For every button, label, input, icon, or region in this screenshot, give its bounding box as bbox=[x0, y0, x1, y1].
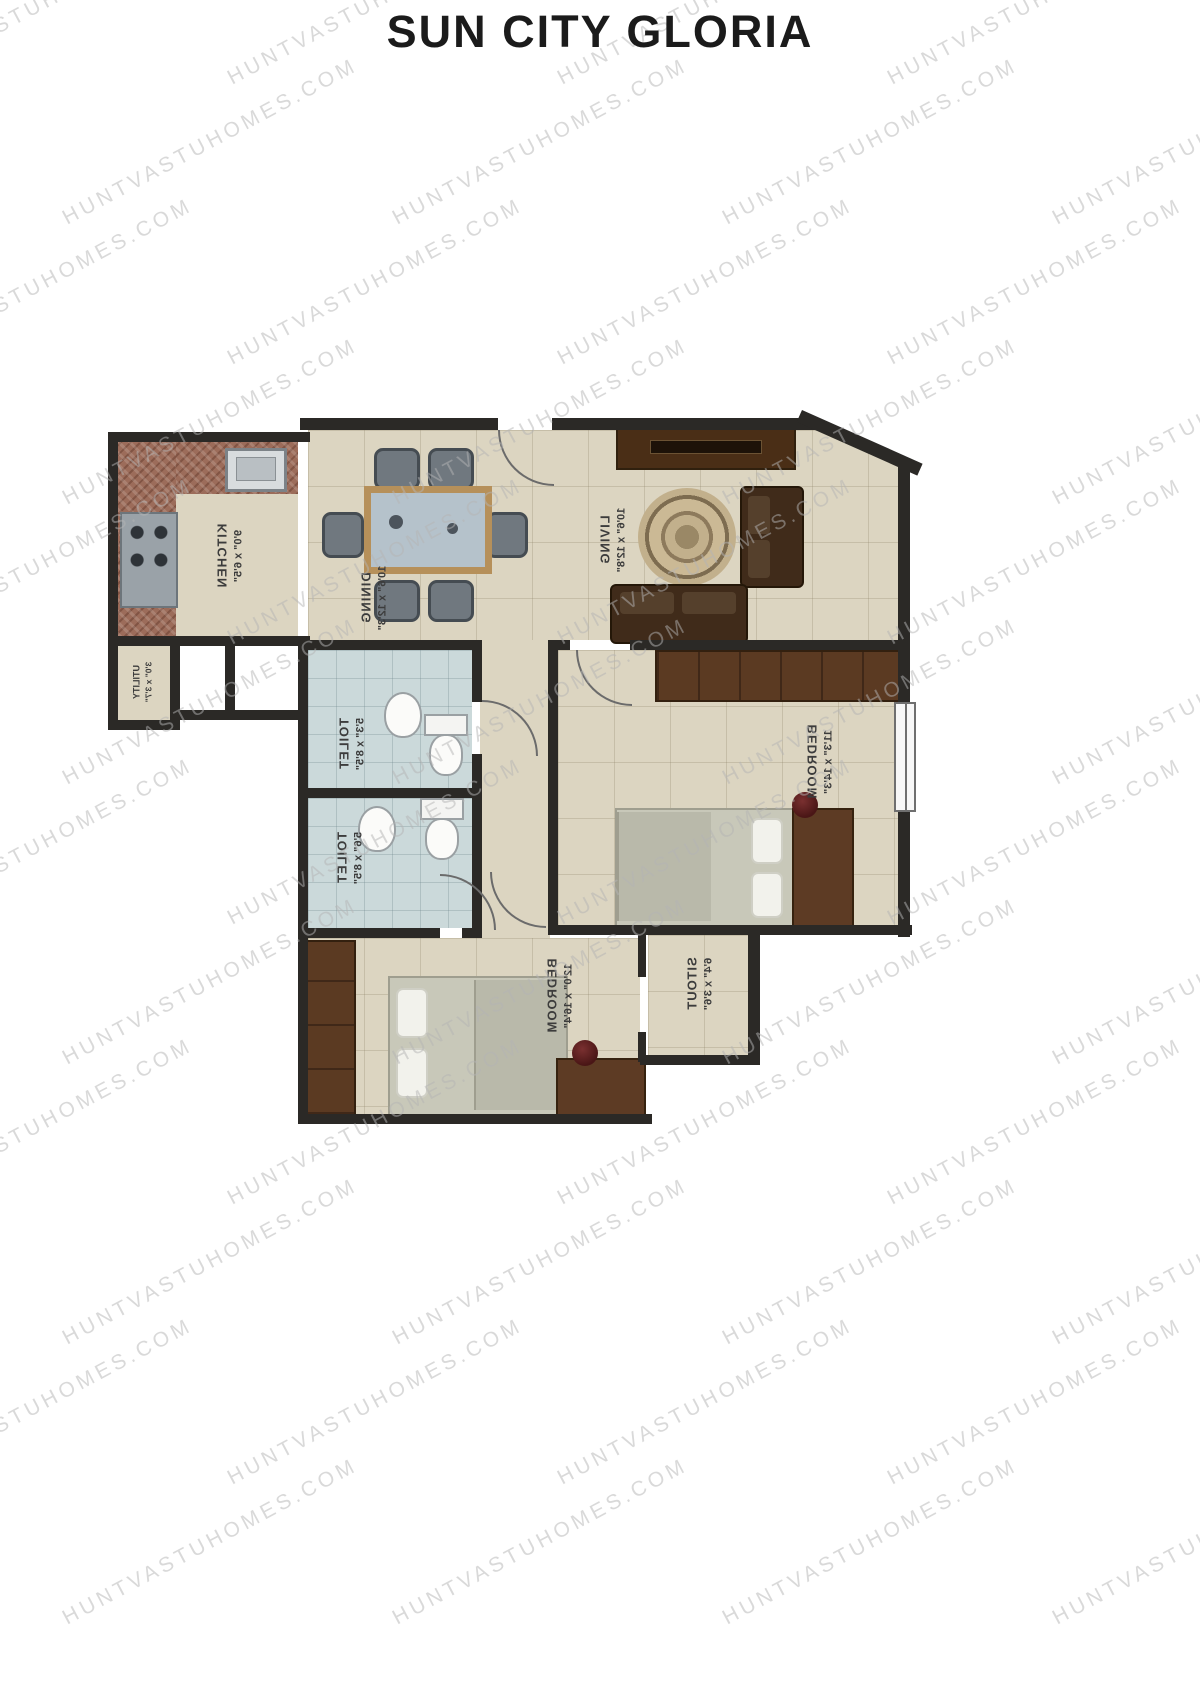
wall bbox=[548, 925, 912, 935]
bedroom2-desk bbox=[556, 1058, 646, 1118]
wall bbox=[298, 788, 482, 798]
wall bbox=[630, 640, 910, 650]
dining-chair bbox=[428, 580, 474, 622]
room-label-bedroom-1: BEDROOM 11'3" x 14'3" bbox=[804, 725, 835, 800]
floor-plan: KITCHEN 9'0" x 6'5" DINING 10'6" x 12'3"… bbox=[0, 0, 1200, 1697]
round-rug bbox=[638, 488, 736, 586]
room-label-toilet-1: TOILET 5'3" x 8'5" bbox=[336, 718, 367, 770]
wall bbox=[898, 460, 910, 707]
wall bbox=[552, 418, 816, 430]
bedroom1-bed bbox=[615, 808, 794, 929]
wall bbox=[638, 1032, 646, 1062]
wall bbox=[638, 935, 646, 977]
dining-chair bbox=[428, 448, 474, 490]
tv-unit bbox=[616, 424, 796, 470]
wall bbox=[108, 636, 310, 646]
bedroom1-window bbox=[894, 702, 916, 812]
sofa-right bbox=[740, 486, 804, 588]
bedroom1-side-table bbox=[792, 808, 854, 929]
wall bbox=[225, 646, 235, 720]
wall bbox=[748, 935, 760, 1065]
wall bbox=[170, 710, 308, 720]
wall bbox=[300, 418, 498, 430]
dining-chair bbox=[374, 448, 420, 490]
wall bbox=[640, 1055, 760, 1065]
room-label-bedroom-2: BEDROOM 12'0" x 16'4" bbox=[544, 959, 575, 1034]
kitchen-stove bbox=[120, 512, 178, 608]
page-title: SUN CITY GLORIA bbox=[0, 6, 1200, 58]
wall bbox=[472, 640, 482, 702]
sofa-bottom bbox=[610, 584, 748, 644]
kitchen-sink bbox=[225, 448, 287, 492]
bedroom2-bed bbox=[388, 976, 568, 1118]
floor-plan-page: SUN CITY GLORIA bbox=[0, 0, 1200, 1697]
dining-table bbox=[364, 486, 492, 574]
wall bbox=[548, 640, 558, 935]
dining-chair bbox=[322, 512, 364, 558]
room-label-dining: DINING 10'6" x 12'3" bbox=[358, 566, 389, 631]
room-label-living: LIVING 10'6" x 12'8" bbox=[597, 508, 628, 573]
wall bbox=[108, 432, 118, 730]
room-label-sitout: SITOUT 6'4" x 3'6" bbox=[684, 957, 715, 1010]
bedroom2-plant-pot bbox=[572, 1040, 598, 1066]
dining-chair bbox=[486, 512, 528, 558]
wall bbox=[898, 805, 910, 937]
room-label-toilet-2: TOILET 5'6" x 8'5" bbox=[334, 832, 365, 884]
bedroom2-wardrobe bbox=[306, 940, 356, 1116]
wall bbox=[298, 928, 440, 938]
room-label-utility: UTILITY 3'0" x 3'7" bbox=[132, 660, 155, 704]
wall bbox=[108, 432, 310, 442]
wall bbox=[298, 640, 482, 650]
bedroom1-wardrobe bbox=[655, 650, 902, 702]
wall bbox=[298, 928, 308, 1124]
wall bbox=[298, 1114, 652, 1124]
room-label-kitchen: KITCHEN 9'0" x 6'5" bbox=[214, 524, 245, 589]
